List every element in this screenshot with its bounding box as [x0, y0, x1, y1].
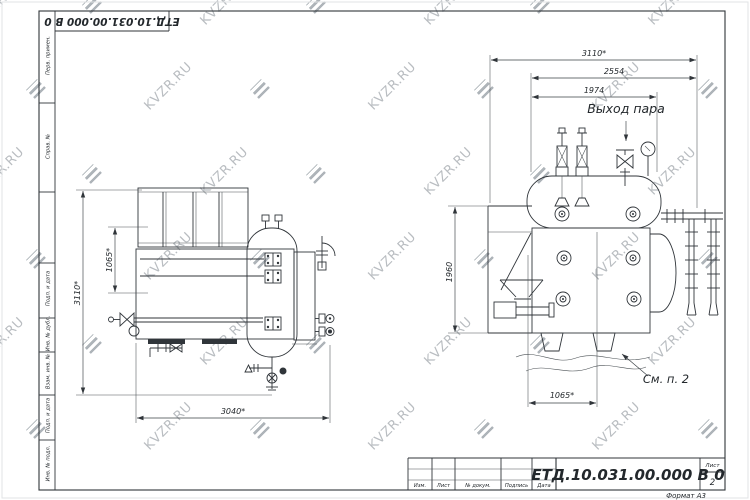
frame-label-podp-data-1: Подп. и дата: [46, 271, 52, 306]
side-view: Выход пара См. п. 2 3110* 2554 1974 1: [445, 49, 723, 407]
plan-topright-valve: [316, 236, 335, 270]
pressure-gauge: [641, 142, 655, 176]
stamp-top-designation: ЕТД.10.031.00.000 В 0: [44, 15, 179, 27]
plan-dim-drum-label: 1065*: [105, 248, 114, 272]
steam-outlet-valve: [616, 150, 634, 186]
drawing-svg: ЕТД.10.031.00.000 В 0 Перв. примен. Спра…: [0, 0, 750, 500]
frame-label-perv-primen: Перв. примен.: [46, 36, 52, 75]
drawing-sheet: KVZR.RUKVZR.RUKVZR.RUKVZR.RUKVZR.RUKVZR.…: [0, 0, 750, 500]
rear-head: [650, 234, 676, 312]
titleblock-sheet-number: 2: [710, 478, 715, 488]
safety-valves: [555, 128, 589, 206]
side-dim-inner-label: 1974: [584, 86, 604, 95]
side-dim-height-label: 1960: [445, 262, 454, 282]
plan-dim-length-label: 3040*: [221, 407, 245, 416]
see-note-label: См. п. 2: [643, 372, 689, 386]
handholes: [555, 207, 641, 306]
titleblock-col-izm: Изм.: [414, 483, 426, 489]
frame-label-inv-podl: Инв. № подл.: [46, 446, 52, 482]
side-dim-total-label: 3110*: [582, 49, 606, 58]
frame-label-vzam-inv: Взам. инв. №: [46, 354, 52, 389]
titleblock-col-podp: Подпись: [505, 483, 528, 489]
titleblock-sheet-label: Лист: [704, 463, 720, 469]
side-dim-mid-label: 2554: [604, 67, 624, 76]
hopper: [488, 206, 554, 333]
side-dim-base-label: 1065*: [550, 391, 574, 400]
foundation: [516, 333, 650, 371]
plan-left-valve: [109, 313, 135, 326]
steam-outlet-label: Выход пара: [587, 101, 665, 116]
right-assembly: [661, 209, 723, 315]
title-block: Изм. Лист № докум. Подпись Дата ЕТД.10.0…: [408, 458, 725, 500]
format-label: Формат А3: [666, 492, 706, 500]
plan-right-fittings: [315, 314, 334, 336]
frame-label-sprav-no: Справ. №: [46, 134, 52, 159]
plan-drain-assembly: [245, 357, 287, 390]
frame-label-inv-dubl: Инв. № дубл.: [46, 316, 52, 352]
plan-dimensions: 3110* 1065* 3040*: [73, 190, 330, 423]
plan-dim-height-label: 3110*: [73, 281, 82, 305]
plan-view: 3110* 1065* 3040*: [73, 188, 335, 423]
titleblock-col-doc: № докум.: [464, 483, 491, 489]
titleblock-col-list: Лист: [436, 483, 451, 489]
frame-label-podp-data-2: Подп. и дата: [46, 398, 52, 433]
titleblock-designation: ЕТД.10.031.00.000 В 0: [531, 466, 724, 484]
drum-flange-cluster: [265, 253, 281, 330]
